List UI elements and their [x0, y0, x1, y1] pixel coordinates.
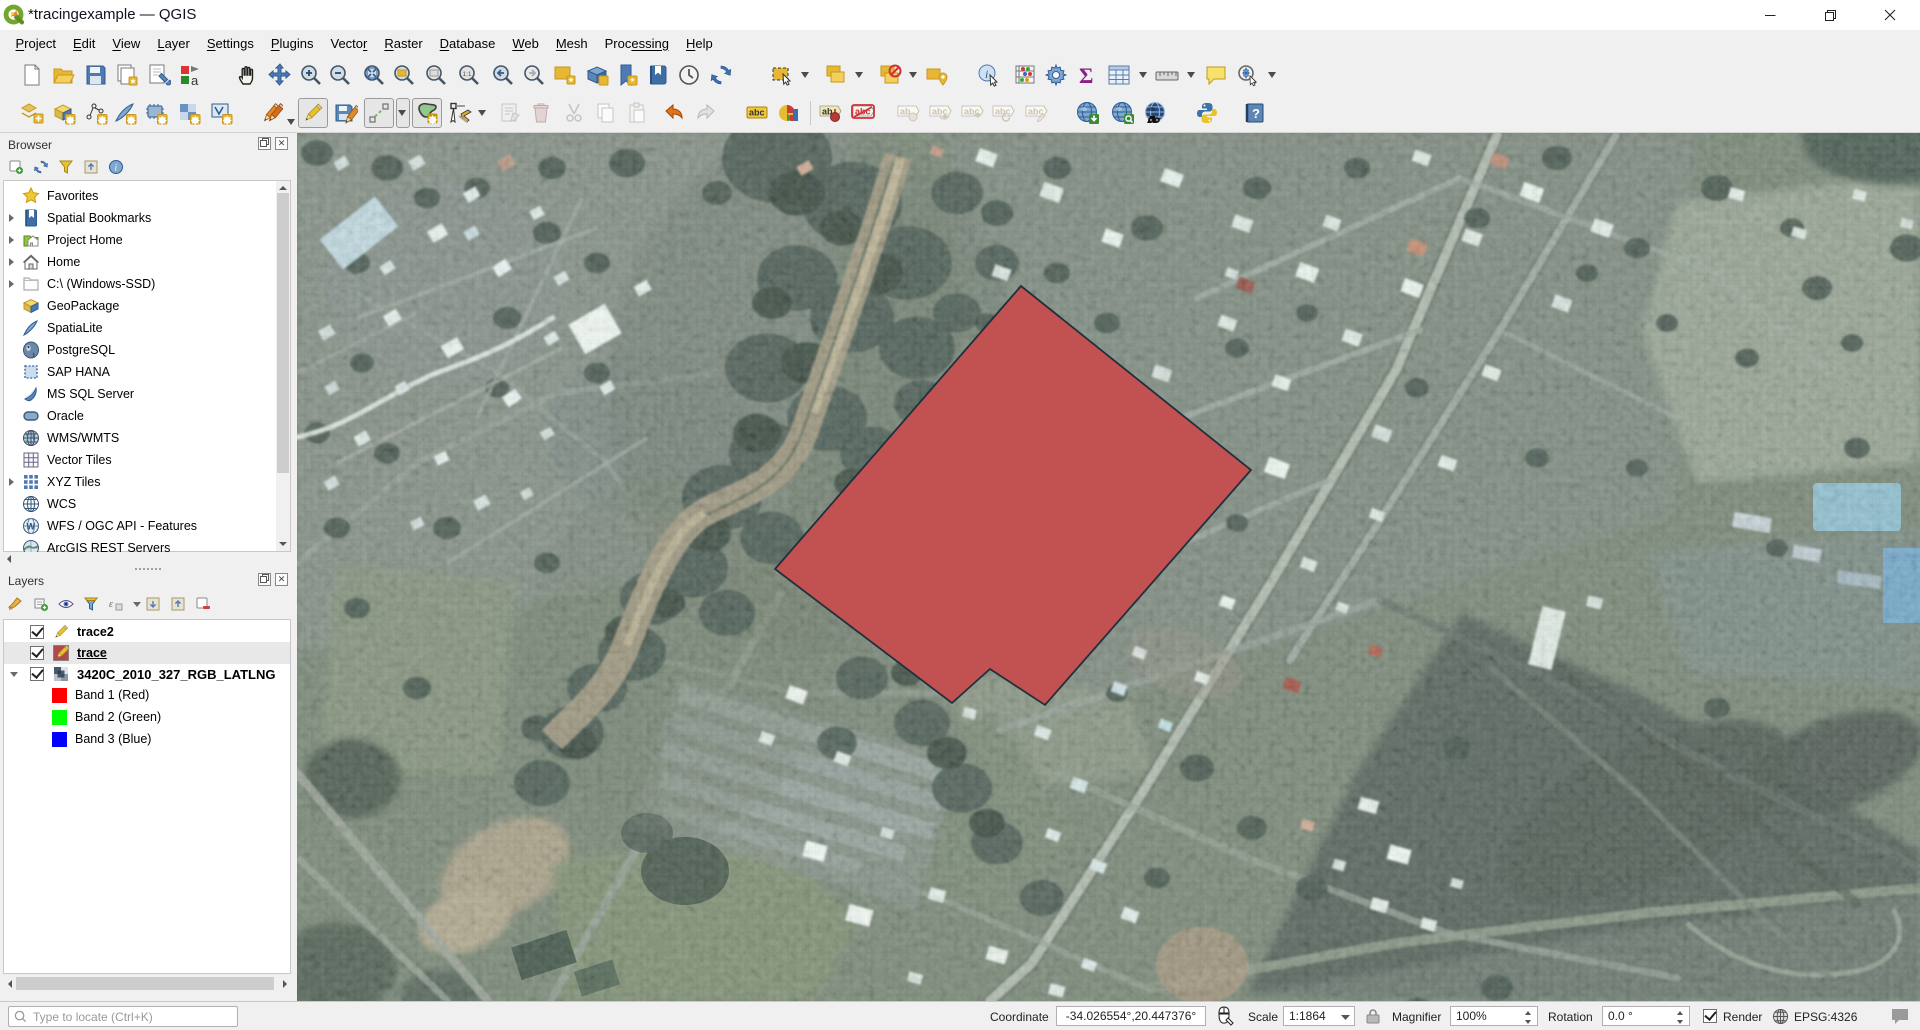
svg-text:ε: ε: [109, 599, 113, 610]
svg-text:abc: abc: [1028, 107, 1044, 117]
svg-text:a: a: [191, 73, 199, 87]
svg-text:abc: abc: [749, 108, 765, 118]
svg-text:i: i: [985, 67, 988, 81]
svg-text:Σ: Σ: [1079, 63, 1093, 87]
svg-text:W: W: [27, 522, 36, 532]
svg-text:1:1: 1:1: [463, 71, 472, 78]
svg-text:?: ?: [1252, 106, 1260, 121]
